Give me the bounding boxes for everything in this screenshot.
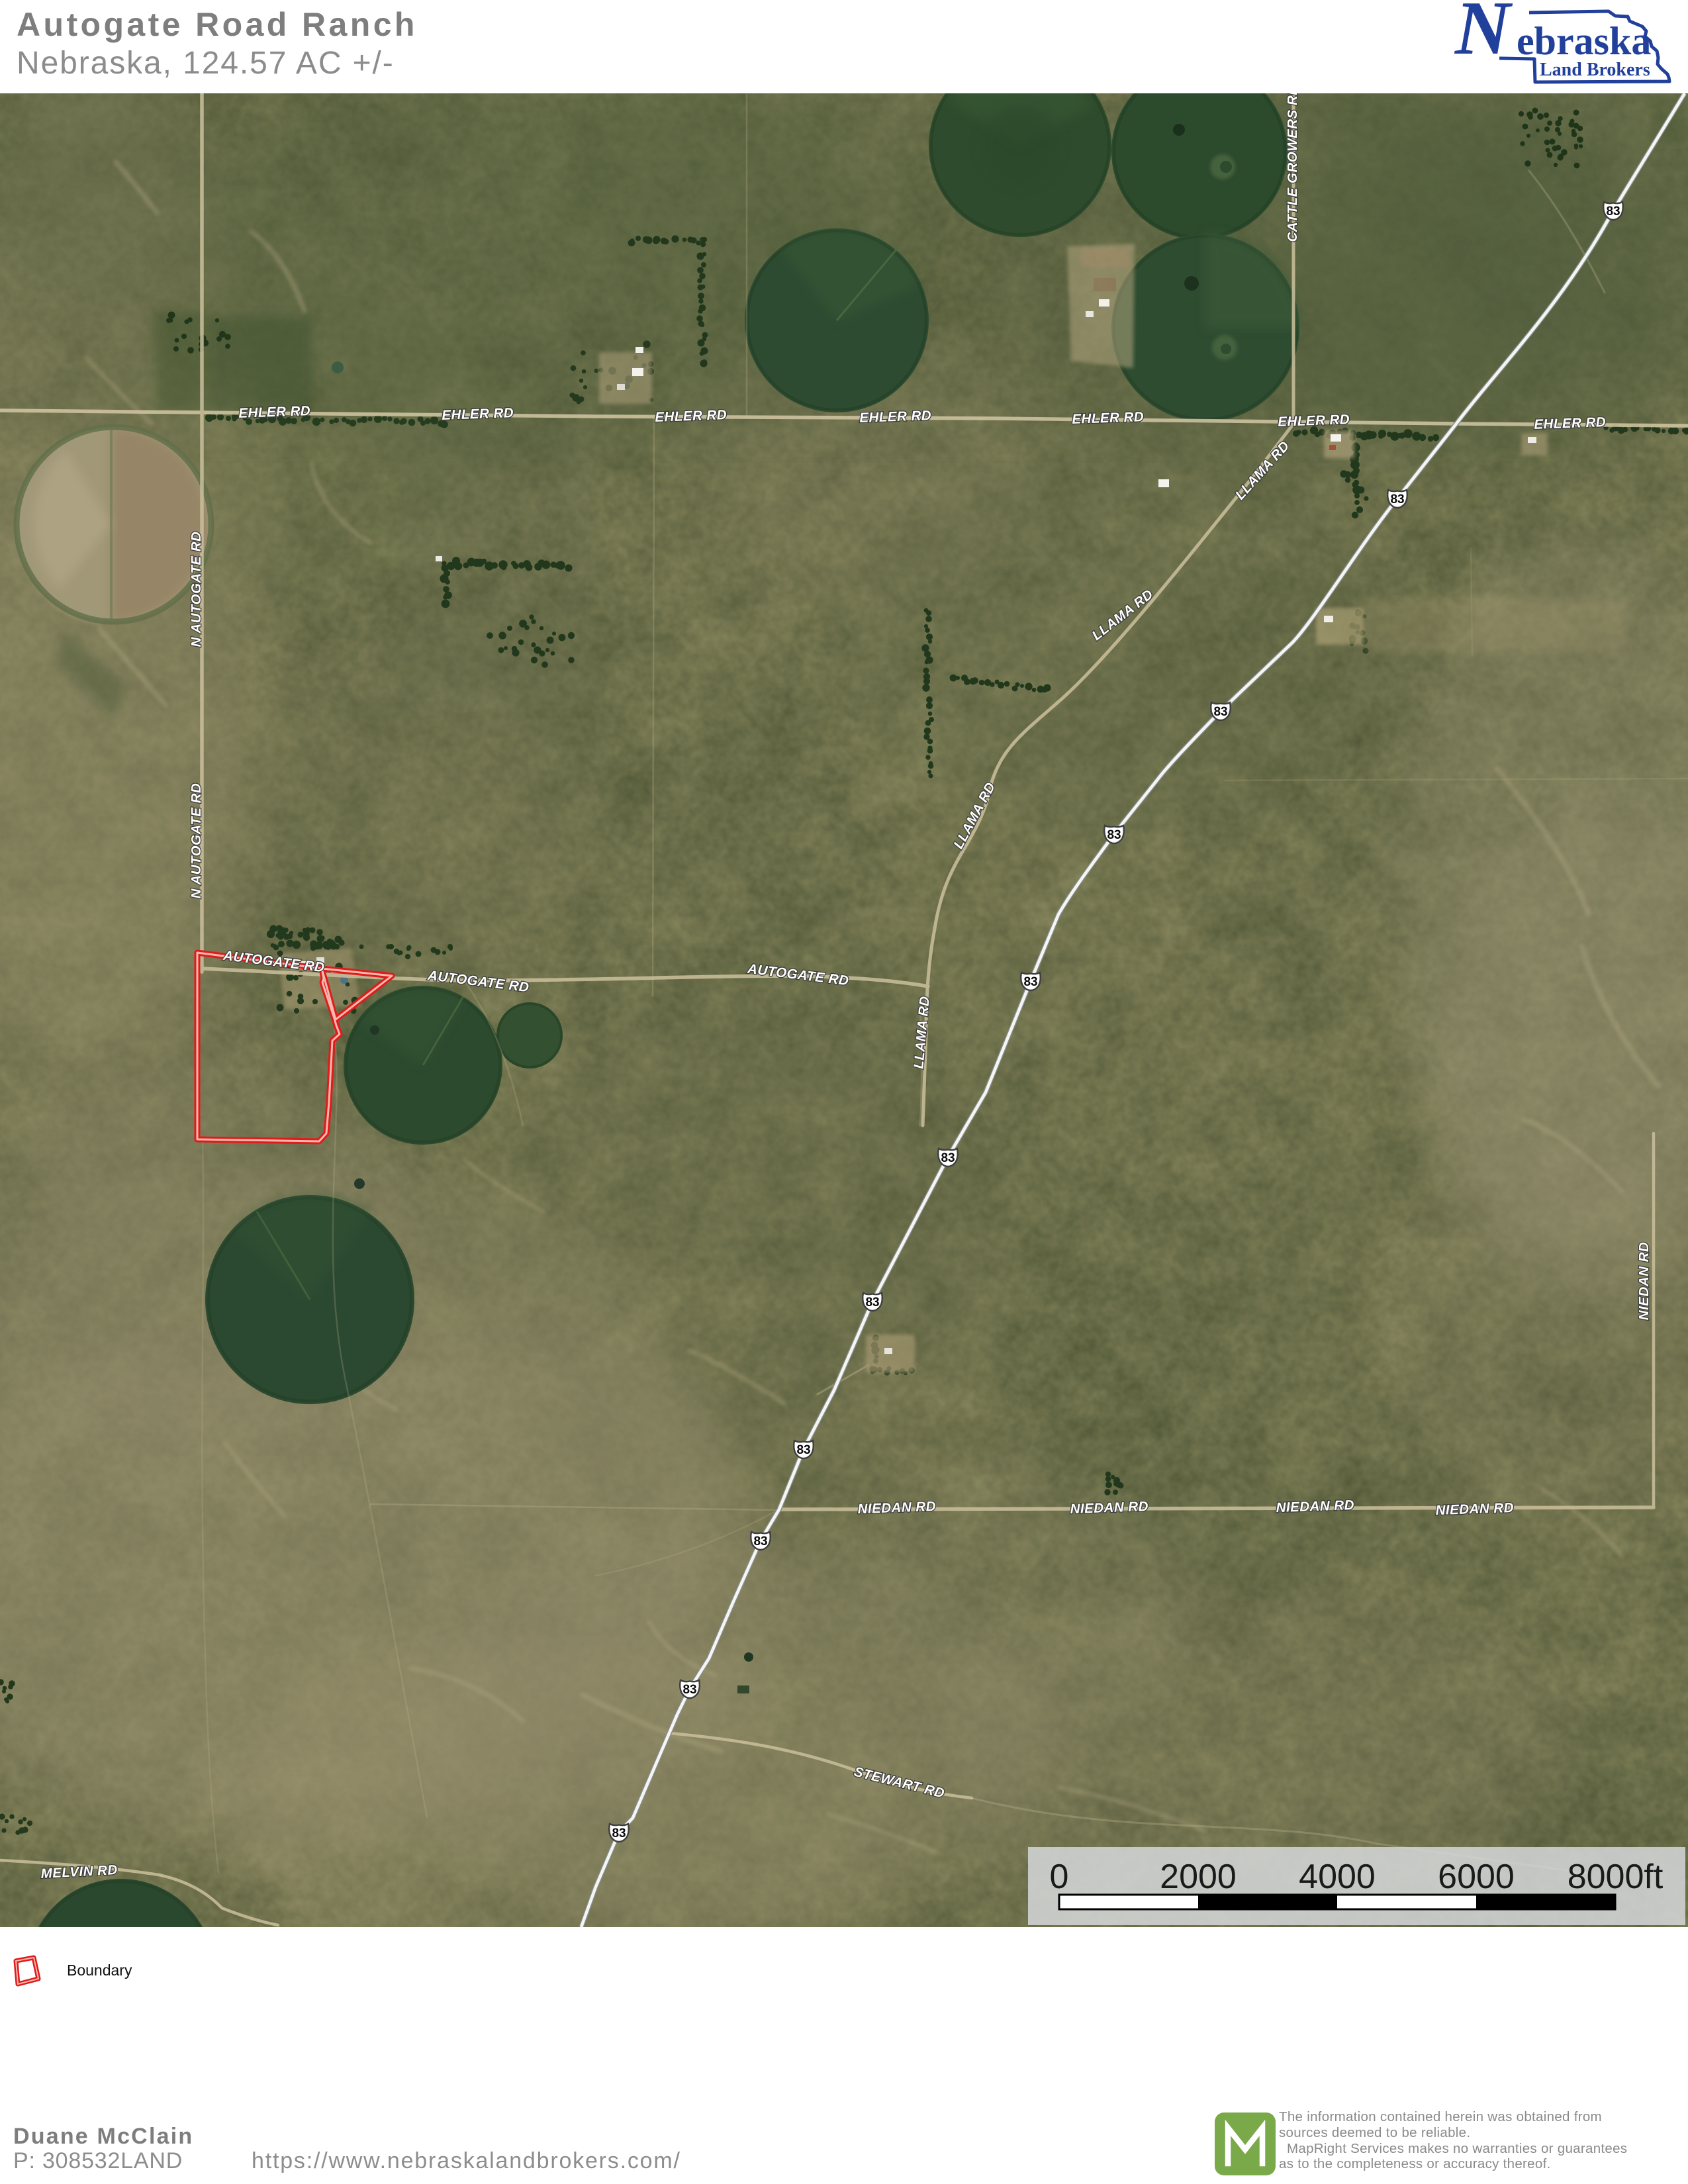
svg-text:N: N [1454, 0, 1513, 71]
svg-text:NIEDAN RD: NIEDAN RD [857, 1499, 936, 1517]
svg-text:EHLER RD: EHLER RD [859, 408, 932, 426]
svg-text:NIEDAN RD: NIEDAN RD [1276, 1497, 1354, 1515]
svg-text:Land Brokers: Land Brokers [1540, 60, 1650, 80]
svg-text:EHLER RD: EHLER RD [1072, 409, 1145, 427]
svg-text:ebraska: ebraska [1517, 19, 1651, 63]
svg-text:6000: 6000 [1438, 1858, 1515, 1896]
svg-text:NIEDAN RD: NIEDAN RD [1070, 1499, 1149, 1517]
svg-text:EHLER RD: EHLER RD [1278, 412, 1350, 430]
svg-text:0: 0 [1050, 1858, 1069, 1896]
svg-text:N AUTOGATE RD: N AUTOGATE RD [189, 783, 204, 899]
svg-text:4000: 4000 [1299, 1858, 1376, 1896]
svg-text:EHLER RD: EHLER RD [238, 403, 311, 421]
svg-text:8000ft: 8000ft [1568, 1858, 1664, 1896]
svg-text:N AUTOGATE RD: N AUTOGATE RD [189, 532, 204, 647]
svg-text:EHLER RD: EHLER RD [1534, 414, 1607, 432]
svg-text:EHLER RD: EHLER RD [655, 407, 727, 425]
svg-text:2000: 2000 [1160, 1858, 1237, 1896]
svg-text:CATTLE GROWERS RD: CATTLE GROWERS RD [1285, 93, 1300, 242]
svg-text:EHLER RD: EHLER RD [442, 405, 514, 423]
svg-text:NIEDAN RD: NIEDAN RD [1435, 1500, 1514, 1518]
svg-text:NIEDAN RD: NIEDAN RD [1636, 1242, 1652, 1320]
